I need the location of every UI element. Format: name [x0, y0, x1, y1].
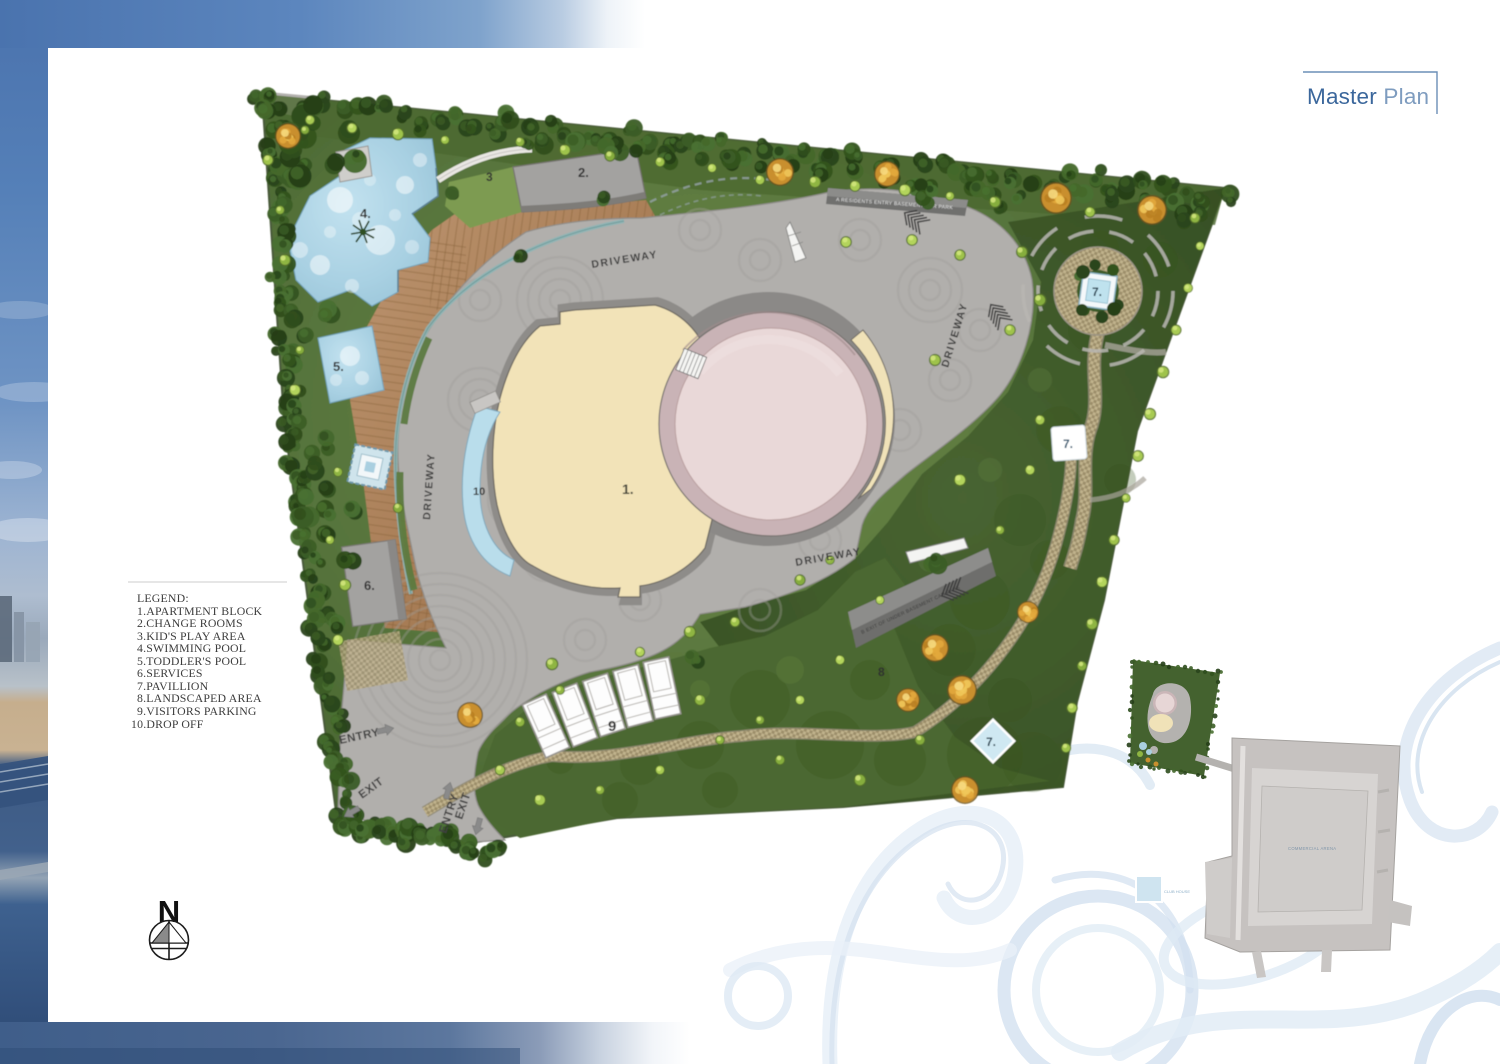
svg-text:9.VISITORS PARKING: 9.VISITORS PARKING [137, 704, 257, 718]
svg-text:8.LANDSCAPED AREA: 8.LANDSCAPED AREA [137, 691, 262, 705]
svg-text:3: 3 [486, 170, 493, 184]
svg-text:9: 9 [608, 718, 616, 735]
svg-text:8: 8 [878, 665, 885, 679]
svg-text:4.SWIMMING POOL: 4.SWIMMING POOL [137, 641, 246, 655]
svg-text:1.: 1. [622, 481, 634, 497]
svg-text:7.: 7. [986, 735, 996, 749]
svg-text:LEGEND:: LEGEND: [137, 591, 189, 605]
svg-text:7.: 7. [1063, 437, 1073, 451]
svg-text:7.: 7. [1092, 285, 1102, 299]
svg-text:4.: 4. [360, 206, 371, 221]
svg-text:Master Plan: Master Plan [1307, 84, 1429, 109]
svg-text:6.SERVICES: 6.SERVICES [137, 666, 203, 680]
svg-text:2.CHANGE ROOMS: 2.CHANGE ROOMS [137, 616, 243, 630]
svg-text:10.DROP OFF: 10.DROP OFF [131, 717, 204, 731]
svg-text:6.: 6. [364, 578, 375, 593]
svg-text:2.: 2. [578, 165, 589, 180]
svg-text:CLUB HOUSE: CLUB HOUSE [1164, 889, 1190, 894]
svg-text:5.: 5. [333, 359, 344, 374]
svg-text:10: 10 [473, 486, 485, 498]
svg-text:COMMERCIAL ARENA: COMMERCIAL ARENA [1288, 846, 1336, 851]
